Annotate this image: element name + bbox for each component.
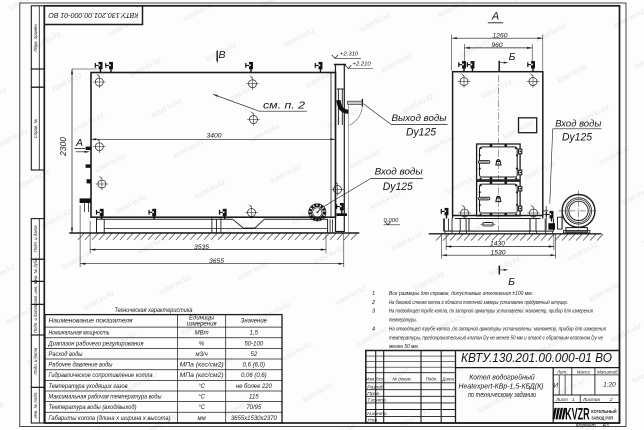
svg-text:Справ. №: Справ. №	[33, 118, 38, 138]
svg-text:ЗАВОД РЭП: ЗАВОД РЭП	[591, 415, 613, 420]
svg-text:Температура уходящих газов: Температура уходящих газов	[49, 384, 128, 390]
svg-text:Котел водогрейный: Котел водогрейный	[469, 374, 535, 382]
svg-text:Наименование показателя: Наименование показателя	[49, 319, 134, 325]
svg-text:м3/ч: м3/ч	[195, 352, 207, 358]
svg-text:А: А	[491, 11, 499, 23]
svg-text:Вход воды: Вход воды	[555, 118, 601, 129]
svg-text:52: 52	[251, 352, 258, 358]
svg-text:+2.310: +2.310	[340, 51, 359, 57]
svg-text:3400: 3400	[207, 133, 222, 140]
svg-text:На подводящей трубе котла, до: На подводящей трубе котла, до запорной а…	[389, 308, 593, 315]
svg-text:Диапазон рабочего регулировани: Диапазон рабочего регулирования	[48, 341, 145, 347]
svg-text:Разраб.: Разраб.	[367, 385, 385, 391]
svg-text:0,06 (0,6): 0,06 (0,6)	[241, 373, 267, 379]
svg-text:А: А	[75, 137, 83, 149]
svg-text:960: 960	[491, 42, 502, 49]
svg-text:Лист: Лист	[375, 377, 383, 382]
svg-text:%: %	[199, 341, 205, 347]
svg-text:Значение: Значение	[241, 319, 268, 325]
svg-text:температуры.: температуры.	[389, 318, 417, 324]
svg-text:Б: Б	[508, 276, 515, 288]
svg-text:И: И	[554, 382, 559, 389]
svg-text:№ докум.: № докум.	[392, 377, 411, 382]
svg-text:°С: °С	[198, 405, 205, 411]
svg-text:°С: °С	[198, 395, 205, 401]
svg-text:3655х1530х2370: 3655х1530х2370	[231, 416, 278, 422]
svg-text:Изм.: Изм.	[366, 377, 375, 382]
svg-text:Инв. № дубл.: Инв. № дубл.	[33, 257, 38, 283]
svg-text:см. п. 2: см. п. 2	[263, 101, 306, 112]
svg-text:Dy125: Dy125	[383, 181, 413, 193]
svg-text:Взам. инв. №: Взам. инв. №	[33, 279, 38, 306]
svg-text:МПа (кгс/см2): МПа (кгс/см2)	[180, 373, 224, 379]
svg-text:Техническая характеристика: Техническая характеристика	[115, 307, 193, 314]
svg-text:Т.контр.: Т.контр.	[367, 398, 387, 404]
svg-text:Максимальная рабочая температу: Максимальная рабочая температура воды	[49, 395, 163, 401]
svg-text:Формат: Формат	[576, 423, 596, 429]
svg-text:менее 50 мм.: менее 50 мм.	[389, 344, 419, 350]
svg-text:Пров.: Пров.	[367, 391, 380, 397]
svg-text:Утв.: Утв.	[367, 418, 378, 424]
svg-text:Лит.: Лит.	[556, 370, 567, 375]
svg-text:Вход воды: Вход воды	[375, 166, 423, 177]
svg-text:Heatexpert-КВр-1,5-КБД(К): Heatexpert-КВр-1,5-КБД(К)	[459, 384, 544, 391]
svg-text:1: 1	[372, 291, 375, 297]
svg-text:°С: °С	[198, 384, 205, 390]
svg-text:Dy125: Dy125	[562, 132, 592, 144]
svg-text:70/95: 70/95	[246, 405, 262, 411]
svg-text:по техническому заданию: по техническому заданию	[468, 391, 536, 399]
svg-text:0.000: 0.000	[384, 218, 399, 224]
svg-text:Подп.: Подп.	[426, 377, 438, 382]
svg-text:МПа (кгс/см2): МПа (кгс/см2)	[180, 363, 224, 369]
svg-text:3535: 3535	[194, 244, 209, 251]
svg-text:Лист: Лист	[555, 397, 568, 402]
svg-text:Масса: Масса	[577, 370, 591, 375]
svg-text:Подп. и дата: Подп. и дата	[33, 347, 38, 375]
svg-text:Б: Б	[509, 51, 516, 63]
svg-text:МВт: МВт	[195, 331, 209, 337]
svg-text:На отводящей трубе котла ,до з: На отводящей трубе котла ,до запорной ар…	[389, 325, 606, 332]
svg-text:КВТУ.130.201.00.000-01 ВО: КВТУ.130.201.00.000-01 ВО	[461, 350, 612, 365]
svg-text:не более 220: не более 220	[236, 384, 273, 390]
svg-text:Рабочее давление воды: Рабочее давление воды	[49, 363, 114, 369]
svg-text:2300: 2300	[59, 136, 68, 157]
svg-text:Номинальная мощность: Номинальная мощность	[49, 331, 110, 337]
svg-text:Подп. и дата: Подп. и дата	[33, 225, 38, 253]
svg-text:А3: А3	[602, 423, 609, 429]
svg-text:+2.210: +2.210	[353, 62, 372, 68]
svg-text:Листов: Листов	[582, 397, 600, 402]
svg-text:Dy125: Dy125	[406, 126, 436, 138]
svg-text:Перв. примен.: Перв. примен.	[33, 23, 38, 52]
svg-text:температуры, предохранительный: температуры, предохранительный клапан Dу…	[389, 334, 603, 341]
svg-text:1260: 1260	[493, 32, 508, 39]
svg-text:Н.контр.: Н.контр.	[367, 411, 388, 417]
svg-text:измерения: измерения	[187, 322, 218, 328]
svg-text:1530: 1530	[491, 250, 506, 257]
svg-text:На боковой стенке котла в обла: На боковой стенке котла в области топочн…	[389, 299, 568, 306]
svg-text:Расход воды: Расход воды	[49, 352, 84, 358]
svg-text:Габариты котла (длина х ширина: Габариты котла (длина х ширина х высота)	[49, 416, 171, 422]
svg-text:мм: мм	[197, 416, 205, 422]
svg-text:Все размеры для справок, допус: Все размеры для справок, допустимые откл…	[389, 291, 533, 297]
svg-text:4: 4	[372, 326, 375, 332]
svg-text:КОТЕЛЬНЫЙ: КОТЕЛЬНЫЙ	[591, 407, 616, 414]
svg-text:Подп. и дата: Подп. и дата	[33, 306, 38, 334]
svg-text:Выход воды: Выход воды	[392, 113, 447, 124]
svg-text:KVZR: KVZR	[565, 406, 590, 424]
svg-text:Инв. № подл.: Инв. № подл.	[33, 392, 38, 419]
svg-text:В: В	[218, 49, 225, 61]
svg-text:Температура воды (вход/выход): Температура воды (вход/выход)	[49, 405, 137, 411]
svg-text:Масштаб: Масштаб	[597, 370, 618, 375]
svg-text:115: 115	[249, 395, 259, 401]
svg-text:0,6 (6,0): 0,6 (6,0)	[243, 363, 265, 369]
svg-text:1,5: 1,5	[250, 331, 259, 337]
svg-text:КВТУ.130.201.00.000-01 ВО: КВТУ.130.201.00.000-01 ВО	[48, 11, 138, 20]
svg-text:1430: 1430	[490, 241, 505, 248]
svg-text:50-100: 50-100	[245, 341, 264, 347]
svg-text:Единицы: Единицы	[189, 315, 215, 321]
svg-text:Дата: Дата	[441, 377, 454, 382]
svg-text:1:20: 1:20	[603, 382, 616, 389]
svg-text:3655: 3655	[209, 258, 224, 265]
svg-text:2: 2	[609, 397, 613, 402]
svg-text:1: 1	[572, 397, 575, 402]
svg-text:Гидравлическое сопротивление к: Гидравлическое сопротивление котла	[49, 373, 154, 379]
